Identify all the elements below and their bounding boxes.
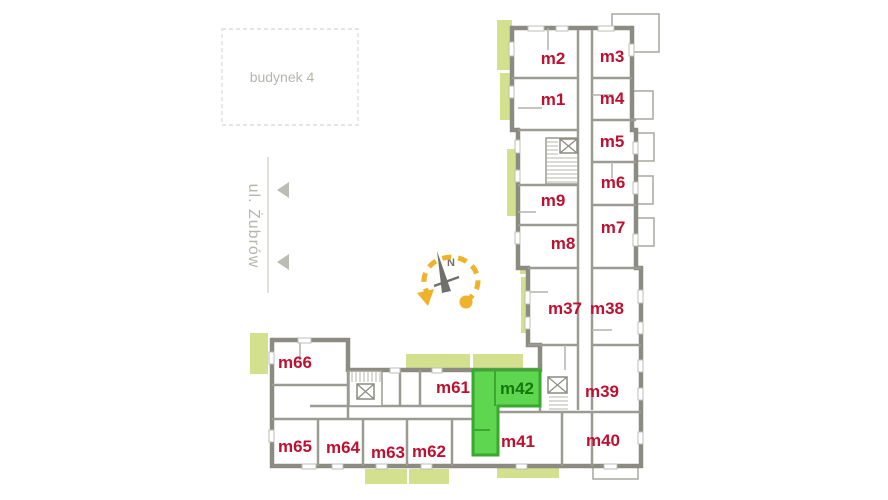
building-4-label: budynek 4 bbox=[250, 69, 315, 85]
apartment-label-m38[interactable]: m38 bbox=[590, 299, 624, 318]
staircase-upper bbox=[546, 138, 578, 184]
apartment-label-m40[interactable]: m40 bbox=[586, 431, 620, 450]
apartment-label-m1[interactable]: m1 bbox=[541, 90, 566, 109]
elevator-icon bbox=[548, 377, 567, 393]
compass[interactable]: N bbox=[417, 251, 478, 309]
apartment-label-m7[interactable]: m7 bbox=[601, 218, 626, 237]
building-4-placeholder[interactable]: budynek 4 bbox=[222, 29, 358, 125]
rotate-arrowhead-icon bbox=[417, 289, 434, 306]
street-arrow-icon bbox=[277, 182, 289, 198]
apartment-label-m8[interactable]: m8 bbox=[551, 234, 576, 253]
apartment-label-m37[interactable]: m37 bbox=[548, 299, 582, 318]
apartment-label-m4[interactable]: m4 bbox=[600, 89, 625, 108]
staircase-left-wing bbox=[349, 371, 382, 406]
street-arrow-icon bbox=[277, 254, 289, 270]
apartment-label-m61[interactable]: m61 bbox=[436, 378, 470, 397]
apartment-label-m3[interactable]: m3 bbox=[600, 47, 625, 66]
apartment-label-m65[interactable]: m65 bbox=[278, 437, 312, 456]
street-name-label: ul. Żubrów bbox=[245, 184, 264, 269]
apartment-label-m63[interactable]: m63 bbox=[371, 443, 405, 462]
apartment-label-m42[interactable]: m42 bbox=[500, 379, 534, 398]
apartment-label-m6[interactable]: m6 bbox=[601, 173, 626, 192]
apartment-label-m66[interactable]: m66 bbox=[278, 353, 312, 372]
elevator-icon bbox=[560, 139, 577, 153]
elevator-icon bbox=[357, 384, 374, 399]
apartment-label-m39[interactable]: m39 bbox=[585, 382, 619, 401]
rotate-handle-dot[interactable] bbox=[460, 296, 473, 309]
apartment-label-m2[interactable]: m2 bbox=[541, 49, 566, 68]
apartment-label-m5[interactable]: m5 bbox=[600, 132, 625, 151]
apartment-label-m64[interactable]: m64 bbox=[326, 438, 361, 457]
apartment-label-m62[interactable]: m62 bbox=[412, 442, 446, 461]
street-annotation: ul. Żubrów bbox=[245, 157, 289, 293]
site-plan: m2m3m1m4m5m6m9m7m8m37m38m39m42m61m66m41m… bbox=[0, 0, 888, 500]
apartment-label-m41[interactable]: m41 bbox=[501, 432, 535, 451]
floorplan-canvas: m2m3m1m4m5m6m9m7m8m37m38m39m42m61m66m41m… bbox=[0, 0, 888, 500]
apartment-label-m9[interactable]: m9 bbox=[541, 191, 566, 210]
